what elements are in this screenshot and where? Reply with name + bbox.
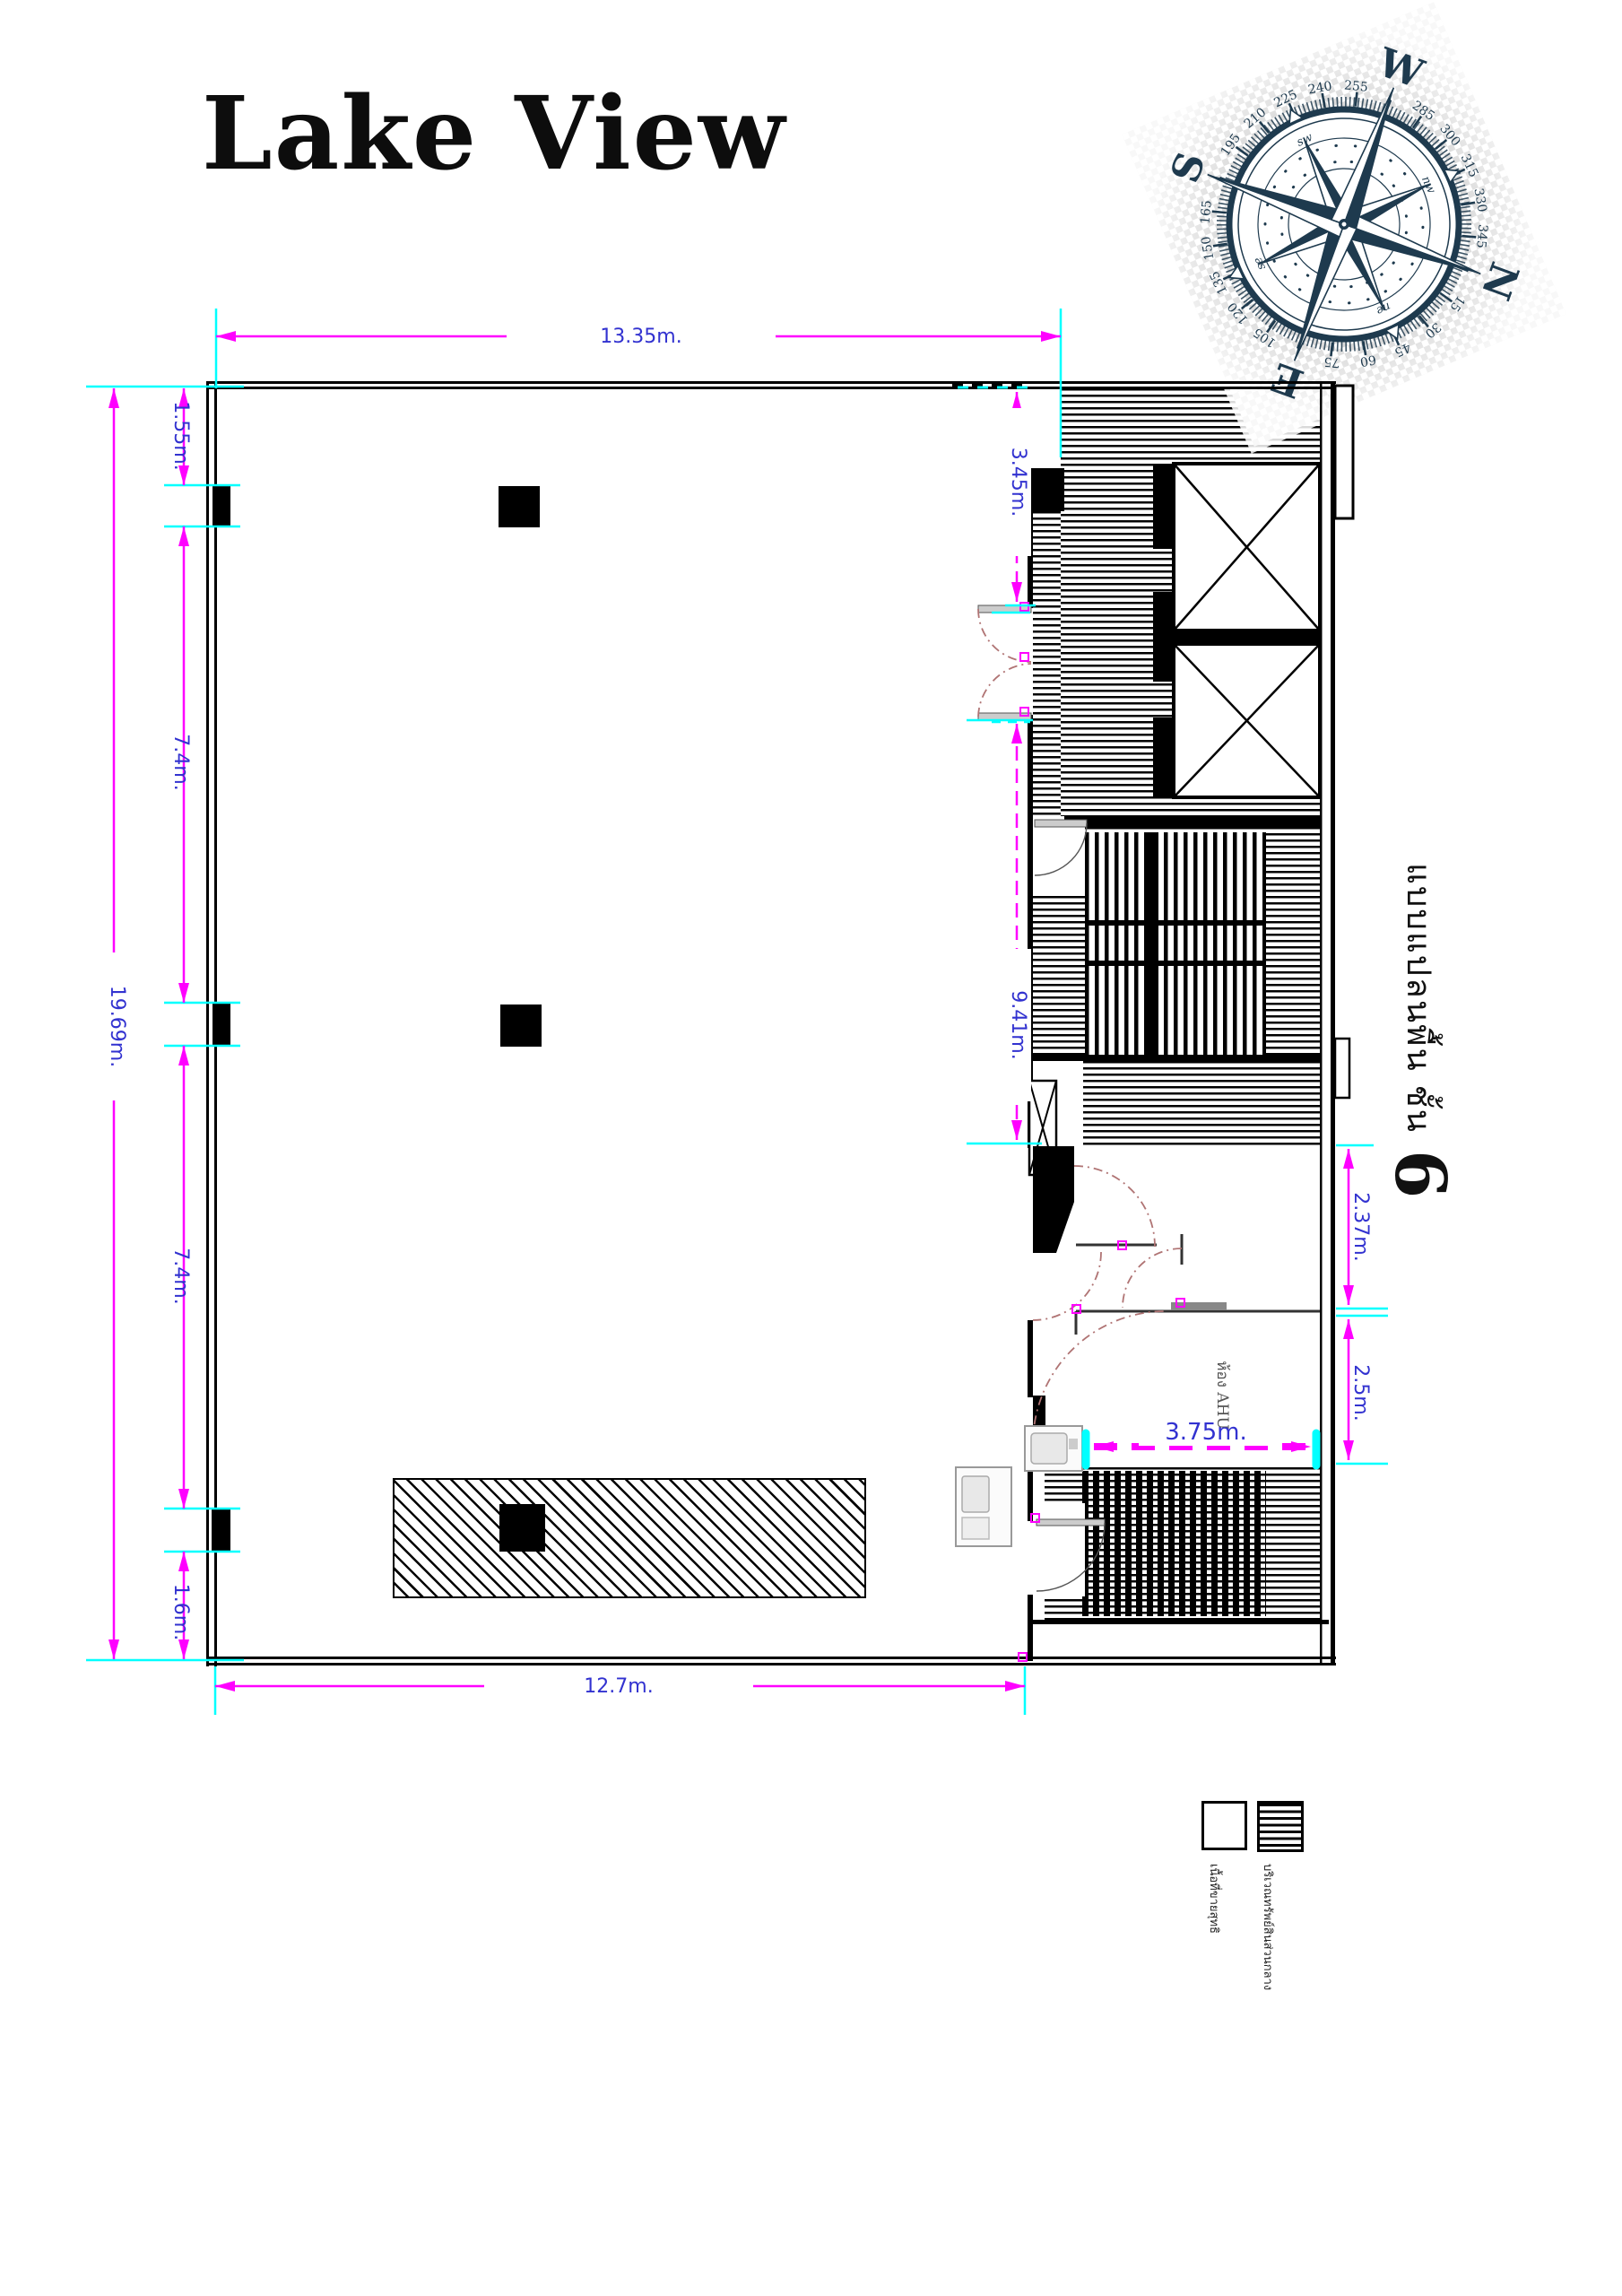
partitions [1076, 1234, 1320, 1335]
dim-right-lower-lower: 2.5m. [1347, 1326, 1374, 1460]
stair-details [1085, 832, 1266, 1055]
dim-chain-1: 1.55m. [167, 386, 194, 486]
floor-plan-page: Lake View [0, 0, 1622, 2296]
dim-left-overall: 19.69m. [103, 952, 130, 1100]
floor-plan-title-text: แบบแปลนพื้น ชั้น [1393, 863, 1446, 1134]
dim-ahu-width: 3.75m. [1139, 1419, 1273, 1446]
shaft-wall-block [1033, 1146, 1074, 1253]
walls [206, 381, 1336, 1666]
legend-swatch-common-area [1257, 1801, 1304, 1852]
wall-tab-top [1335, 386, 1353, 518]
dim-right-upper: 3.45m. [1004, 408, 1031, 556]
dim-chain-4: 1.6m. [167, 1565, 194, 1659]
ahu-fixtures [956, 1426, 1082, 1546]
legend-swatch-net-area [1201, 1801, 1247, 1850]
dim-right-lower-upper: 2.37m. [1347, 1155, 1374, 1299]
dim-chain-2: 7.4m. [167, 713, 194, 812]
legend-label-common-area: บริเวณทรัพย์สินส่วนกลาง [1253, 1864, 1280, 1990]
dim-top-width: 13.35m. [507, 324, 776, 351]
dim-chain-3: 7.4m. [167, 1227, 194, 1326]
dim-bottom-width: 12.7m. [484, 1674, 753, 1700]
dim-right-mid: 9.41m. [1004, 949, 1031, 1101]
floor-plan-title-thai: แบบแปลนพื้น ชั้น 6 [1379, 863, 1460, 1222]
floor-number: 6 [1383, 1150, 1455, 1198]
legend-label-net-area: เนื้อที่ขายสุทธิ [1200, 1864, 1227, 1934]
columns [212, 468, 1064, 1552]
ahu-room-label: ห้อง AHU [1210, 1344, 1234, 1447]
wall-tab-mid [1335, 1039, 1349, 1098]
